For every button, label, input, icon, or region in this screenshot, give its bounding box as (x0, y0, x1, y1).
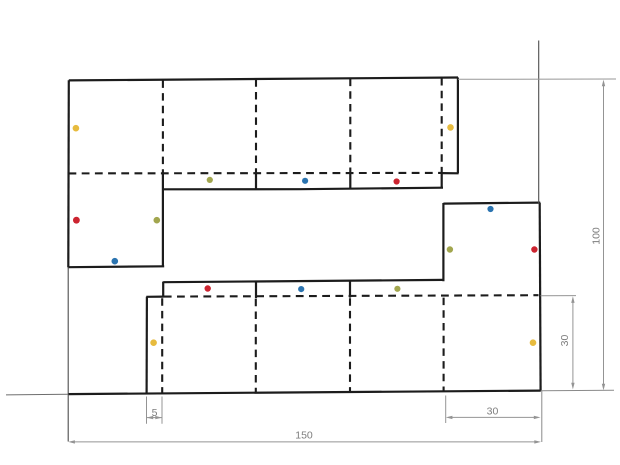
svg-text:30: 30 (559, 335, 571, 347)
svg-text:150: 150 (295, 430, 313, 442)
svg-text:30: 30 (487, 405, 499, 417)
svg-text:100: 100 (591, 227, 603, 245)
svg-text:5: 5 (152, 407, 158, 419)
